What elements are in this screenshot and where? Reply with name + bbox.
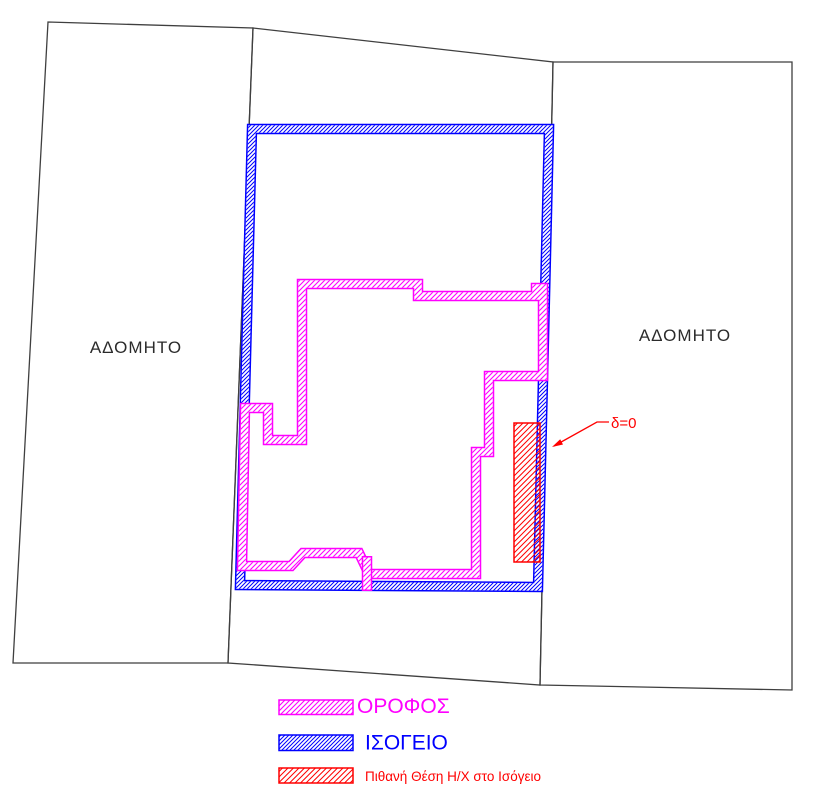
upper-floor-outline <box>242 284 543 574</box>
legend-label-isogeio: ΙΣΟΓΕΙΟ <box>365 732 448 755</box>
legend-item-isogeio: ΙΣΟΓΕΙΟ <box>279 732 448 755</box>
legend-item-orofos: ΟΡΟΦΟΣ <box>279 695 450 718</box>
parcel-left-label: ΑΔΟΜΗΤΟ <box>90 338 182 357</box>
site-plan-page: ΑΔΟΜΗΤΟ ΑΔΟΜΗΤΟ δ=0 <box>0 0 821 800</box>
ground-floor-outline <box>240 129 549 587</box>
legend-swatch-hx <box>279 768 353 783</box>
delta-leader-arrowhead <box>552 439 563 447</box>
site-plan-drawing: ΑΔΟΜΗΤΟ ΑΔΟΜΗΤΟ δ=0 <box>0 0 821 800</box>
parcel-right-label: ΑΔΟΜΗΤΟ <box>639 326 731 345</box>
hx-location-rect <box>514 423 540 562</box>
legend-swatch-orofos <box>279 700 353 715</box>
parcel-right-boundary <box>540 62 792 690</box>
legend-label-hx: Πιθανή Θέση Η/Χ στο Ισόγειο <box>365 769 541 784</box>
legend-swatch-isogeio <box>279 735 353 751</box>
legend: ΟΡΟΦΟΣ ΙΣΟΓΕΙΟ Πιθανή Θέση Η/Χ στο Ισόγε… <box>279 695 541 784</box>
delta-leader-line <box>554 422 609 446</box>
delta-label: δ=0 <box>611 415 636 432</box>
legend-item-hx: Πιθανή Θέση Η/Χ στο Ισόγειο <box>279 768 541 784</box>
legend-label-orofos: ΟΡΟΦΟΣ <box>357 695 450 718</box>
delta-annotation: δ=0 <box>552 415 636 447</box>
